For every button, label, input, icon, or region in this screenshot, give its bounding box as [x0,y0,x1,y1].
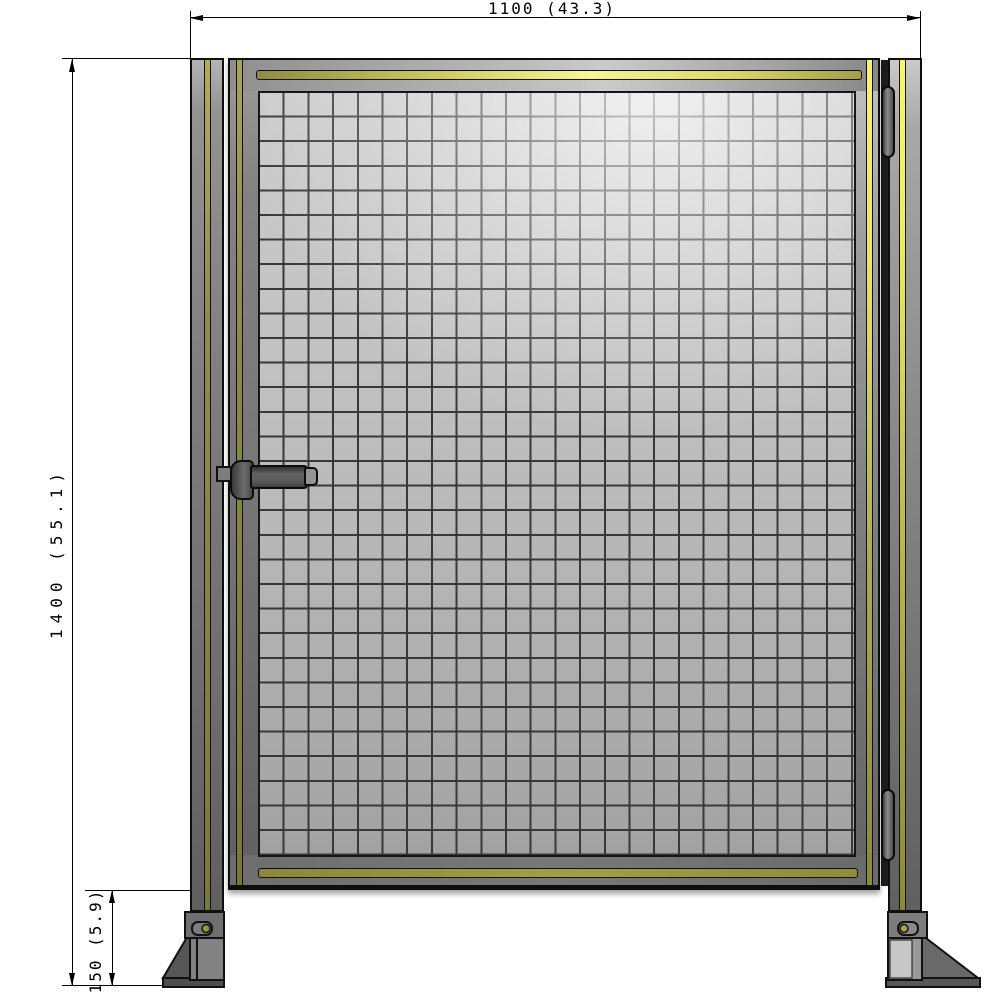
clearance-dimension-line [112,890,113,986]
top-hinge [881,86,895,158]
left-foot-anchor [202,925,210,933]
left-foot [161,910,227,989]
height-dimension-line [72,59,73,986]
technical-drawing-canvas: 1100 (43.3) 1400 (55.1) 150 (5.9) [0,0,1000,1000]
clearance-dimension-label: 150 (5.9) [87,875,105,1000]
bottom-hinge [881,789,895,861]
right-foot-anchor [900,925,908,933]
handle-lever [250,465,308,489]
height-dimension-label: 1400 (55.1) [48,448,66,658]
handle-end-cap [304,467,318,486]
right-post [888,58,922,912]
left-foot-body [190,938,224,980]
height-arrow-down-icon [69,973,75,986]
left-post [190,58,224,912]
right-post-safety-stripe [899,60,906,910]
width-extension-line-right [920,11,921,59]
height-extension-line-top [62,58,190,59]
clearance-arrow-down-icon [109,973,115,986]
clearance-arrow-up-icon [109,890,115,903]
right-foot [884,910,984,989]
wire-mesh-panel [258,91,856,857]
width-arrow-left-icon [190,15,203,21]
gate-leaf [228,58,880,890]
right-foot-panel [890,940,912,978]
gate-top-safety-stripe [256,70,862,80]
ground-line [62,985,174,986]
gate-bottom-safety-stripe [258,868,858,878]
height-arrow-up-icon [69,59,75,72]
right-foot-gusset [922,935,978,978]
width-dimension-label: 1100 (43.3) [402,0,702,18]
gate-right-safety-stripe [866,60,873,885]
left-post-safety-stripe [204,60,211,910]
width-arrow-right-icon [907,15,920,21]
